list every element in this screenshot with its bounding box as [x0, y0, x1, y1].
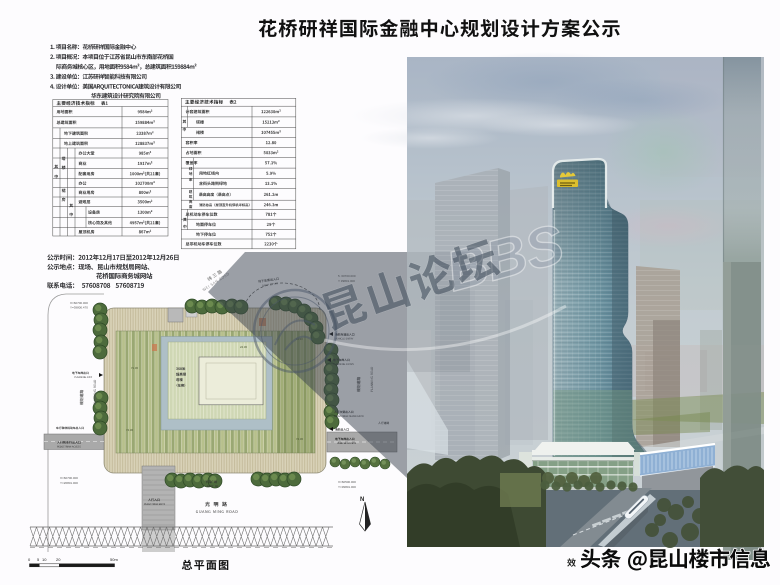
svg-text:X=60700.000: X=60700.000: [70, 301, 88, 305]
svg-text:Y=39800.470: Y=39800.470: [70, 306, 88, 310]
svg-text:Y=39801.000: Y=39801.000: [338, 485, 356, 489]
svg-text:74.30: 74.30: [296, 437, 303, 441]
svg-text:N: N: [360, 497, 364, 503]
svg-text:X=60700.000: X=60700.000: [60, 476, 78, 480]
svg-text:71.30: 71.30: [131, 366, 138, 370]
svg-text:24.30: 24.30: [240, 345, 247, 349]
svg-text:X=60500.000: X=60500.000: [338, 480, 356, 484]
svg-text:10: 10: [42, 557, 47, 562]
svg-text:20: 20: [56, 557, 61, 562]
svg-text:50m: 50m: [110, 557, 118, 562]
svg-text:Y=26801.000: Y=26801.000: [60, 481, 78, 485]
svg-text:74.30: 74.30: [126, 428, 133, 432]
